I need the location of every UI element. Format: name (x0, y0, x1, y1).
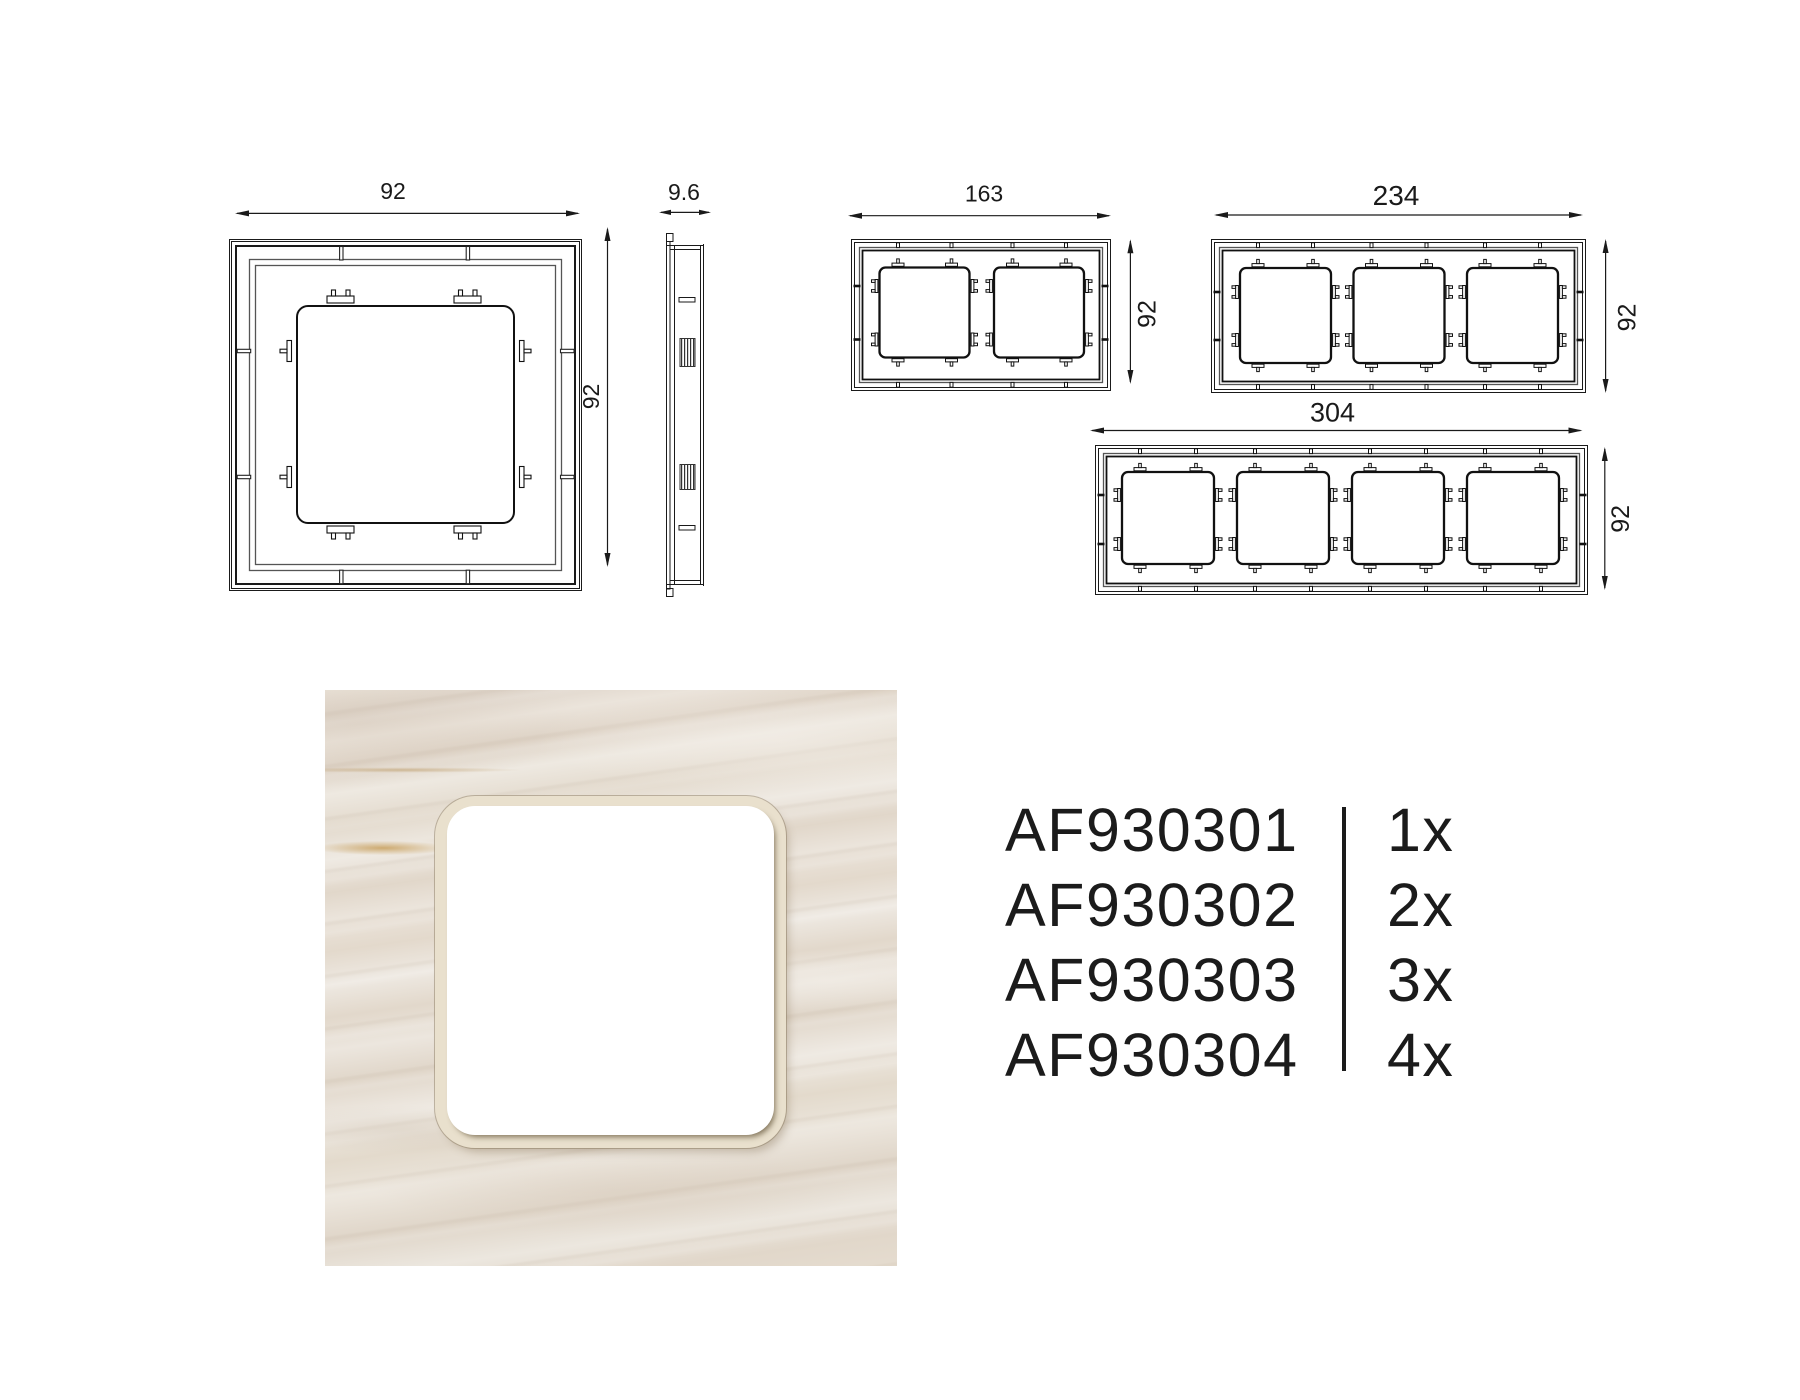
svg-text:92: 92 (380, 178, 406, 204)
svg-text:92: 92 (1607, 505, 1635, 533)
svg-text:234: 234 (1373, 180, 1420, 211)
svg-text:9.6: 9.6 (668, 179, 700, 205)
svg-text:92: 92 (1134, 300, 1162, 328)
svg-text:163: 163 (965, 181, 1003, 207)
svg-text:92: 92 (578, 384, 604, 410)
svg-text:92: 92 (1614, 304, 1642, 332)
svg-text:304: 304 (1310, 398, 1355, 428)
